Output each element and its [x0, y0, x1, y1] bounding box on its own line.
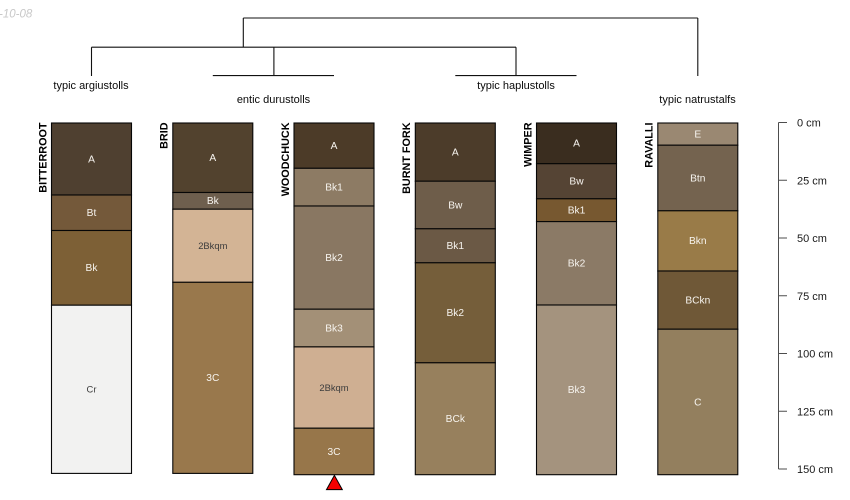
svg-text:entic durustolls: entic durustolls [237, 94, 311, 106]
svg-text:A: A [209, 153, 216, 164]
svg-text:100 cm: 100 cm [797, 349, 833, 361]
svg-text:Bk2: Bk2 [325, 253, 343, 264]
svg-text:Bw: Bw [569, 177, 584, 188]
svg-text:Bk1: Bk1 [325, 182, 343, 193]
svg-text:typic haplustolls: typic haplustolls [477, 80, 555, 92]
svg-text:BCkn: BCkn [685, 295, 710, 306]
svg-text:A: A [452, 147, 459, 158]
svg-text:E: E [694, 129, 701, 140]
svg-text:A: A [88, 154, 95, 165]
svg-text:typic argiustolls: typic argiustolls [53, 80, 129, 92]
svg-text:BURNT FORK: BURNT FORK [401, 122, 413, 194]
svg-text:Bk: Bk [207, 196, 220, 207]
svg-text:125 cm: 125 cm [797, 406, 833, 418]
svg-text:Bk1: Bk1 [568, 206, 586, 217]
svg-text:C: C [694, 397, 701, 408]
svg-text:2Bkqm: 2Bkqm [198, 240, 227, 251]
svg-text:Bk: Bk [86, 263, 99, 274]
svg-text:Bw: Bw [448, 200, 463, 211]
svg-text:-10-08: -10-08 [0, 9, 33, 21]
svg-text:150 cm: 150 cm [797, 464, 833, 476]
svg-text:BITTERROOT: BITTERROOT [37, 122, 49, 193]
svg-text:typic natrustalfs: typic natrustalfs [659, 94, 736, 106]
svg-text:75 cm: 75 cm [797, 291, 827, 303]
svg-text:50 cm: 50 cm [797, 233, 827, 245]
svg-text:RAVALLI: RAVALLI [644, 123, 656, 168]
svg-text:25 cm: 25 cm [797, 175, 827, 187]
svg-text:0 cm: 0 cm [797, 118, 821, 130]
svg-text:WIMPER: WIMPER [522, 122, 534, 167]
svg-text:3C: 3C [206, 373, 219, 384]
svg-text:3C: 3C [327, 447, 340, 458]
svg-text:Bk3: Bk3 [568, 385, 586, 396]
svg-text:A: A [331, 141, 338, 152]
svg-text:Bkn: Bkn [689, 236, 707, 247]
svg-text:BCk: BCk [446, 414, 466, 425]
svg-text:BRID: BRID [159, 122, 171, 149]
svg-text:WOODCHUCK: WOODCHUCK [280, 122, 292, 196]
svg-text:Bk3: Bk3 [325, 323, 343, 334]
svg-text:Bk2: Bk2 [568, 259, 586, 270]
svg-text:Btn: Btn [690, 173, 705, 184]
svg-text:2Bkqm: 2Bkqm [319, 382, 348, 393]
svg-text:Cr: Cr [87, 384, 97, 395]
svg-text:Bk2: Bk2 [447, 308, 465, 319]
svg-text:Bk1: Bk1 [447, 241, 465, 252]
svg-text:A: A [573, 139, 580, 150]
svg-text:Bt: Bt [87, 208, 97, 219]
